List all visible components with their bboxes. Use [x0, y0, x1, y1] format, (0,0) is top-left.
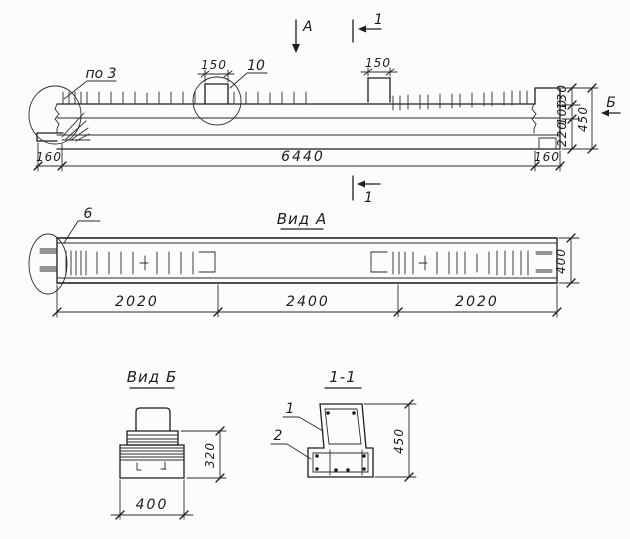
- dim-notch2: 150: [361, 56, 397, 76]
- dim-end-height: 320: [181, 427, 226, 482]
- dim-plan-width-value: 400: [554, 248, 568, 274]
- callout-notch-label: 10: [247, 58, 265, 74]
- arrow-left-icon: [357, 181, 365, 188]
- view-a-title: Вид А: [277, 210, 327, 228]
- section-cut-marker-top: 1: [353, 12, 383, 42]
- section-title-group: 1-1: [325, 368, 361, 388]
- dim-notch1: 150: [198, 58, 234, 82]
- arrow-down-icon: [292, 44, 300, 53]
- view-b-direction-label: Б: [606, 95, 616, 111]
- view-a-direction-arrow: А: [292, 19, 313, 53]
- dim-plan-chain: 2020 2400 2020: [53, 285, 561, 317]
- dim-bottom-part: 220: [555, 121, 569, 147]
- weld-hatch: [62, 113, 90, 141]
- view-a-direction-label: А: [302, 19, 313, 35]
- callout-rebar-1: 1: [283, 401, 323, 431]
- arrow-left-icon: [358, 26, 366, 33]
- beam-outline: [37, 88, 560, 149]
- view-b-direction-arrow: Б: [601, 95, 620, 117]
- callout-left-label: по 3: [85, 66, 116, 82]
- dim-height-chain: 130 100 220 450: [555, 84, 598, 153]
- dim-total-length: 6440: [281, 149, 325, 165]
- dim-right-zone: 2020: [455, 294, 499, 310]
- dim-end-height-value: 320: [203, 442, 217, 468]
- callout-rebar-2: 2: [271, 428, 311, 459]
- stirrup-ticks: [63, 91, 527, 110]
- callout-notch: 10: [230, 58, 267, 88]
- top-notch-1: [205, 84, 228, 104]
- view-a: Вид А 6 2020 2400 2020: [29, 206, 579, 317]
- dim-end-width-value: 400: [136, 497, 169, 513]
- section-shape: [308, 404, 373, 477]
- callout-view-a-label: 6: [84, 206, 93, 222]
- dim-notch2-value: 150: [365, 56, 391, 70]
- plan-stirrup-ticks-right: [393, 251, 528, 275]
- weld-marks-left: [40, 249, 56, 271]
- dim-middle-zone: 2400: [286, 294, 330, 310]
- detail-ellipse-plan: [29, 234, 67, 294]
- view-a-title-group: Вид А: [277, 210, 327, 229]
- callout-left-detail: по 3: [64, 66, 117, 99]
- beam-drawing: А 1 1: [0, 0, 630, 539]
- dim-end-width: 400: [111, 480, 193, 519]
- view-b-title: Вид Б: [127, 368, 177, 386]
- callout-rebar-2-label: 2: [274, 428, 283, 444]
- plan-bracket-right: [371, 252, 387, 272]
- top-notch-2: [368, 78, 390, 102]
- detail-ellipse-left: [29, 86, 81, 144]
- view-b-title-group: Вид Б: [127, 368, 177, 388]
- plan-bracket-left: [199, 252, 215, 272]
- dim-left-zone: 2020: [115, 294, 159, 310]
- end-view-shape: [120, 408, 184, 478]
- weld-marks-right: [536, 252, 552, 272]
- dim-plan-width: 400: [554, 234, 579, 287]
- drawing-sheet: А 1 1: [0, 0, 630, 539]
- dim-total-height: 450: [576, 106, 590, 132]
- view-b: Вид Б 320 400: [111, 368, 226, 519]
- dim-right-overhang: 160: [534, 150, 560, 164]
- plan-outline: [57, 238, 557, 283]
- plan-stirrup-ticks-left: [66, 251, 193, 275]
- section-cut-label-bottom: 1: [364, 190, 373, 206]
- elevation-view: А 1 1: [29, 12, 620, 206]
- section-cut-label-top: 1: [374, 12, 383, 28]
- section-title: 1-1: [329, 368, 357, 386]
- dim-left-overhang: 160: [36, 150, 62, 164]
- section-cut-marker-bottom: 1: [353, 176, 380, 206]
- callout-rebar-1-label: 1: [286, 401, 295, 417]
- dim-section-height-value: 450: [392, 428, 406, 454]
- dim-section-height: 450: [364, 400, 416, 481]
- section-1-1: 1-1 1: [271, 368, 416, 481]
- dim-length-chain: 160 6440 160: [34, 143, 564, 171]
